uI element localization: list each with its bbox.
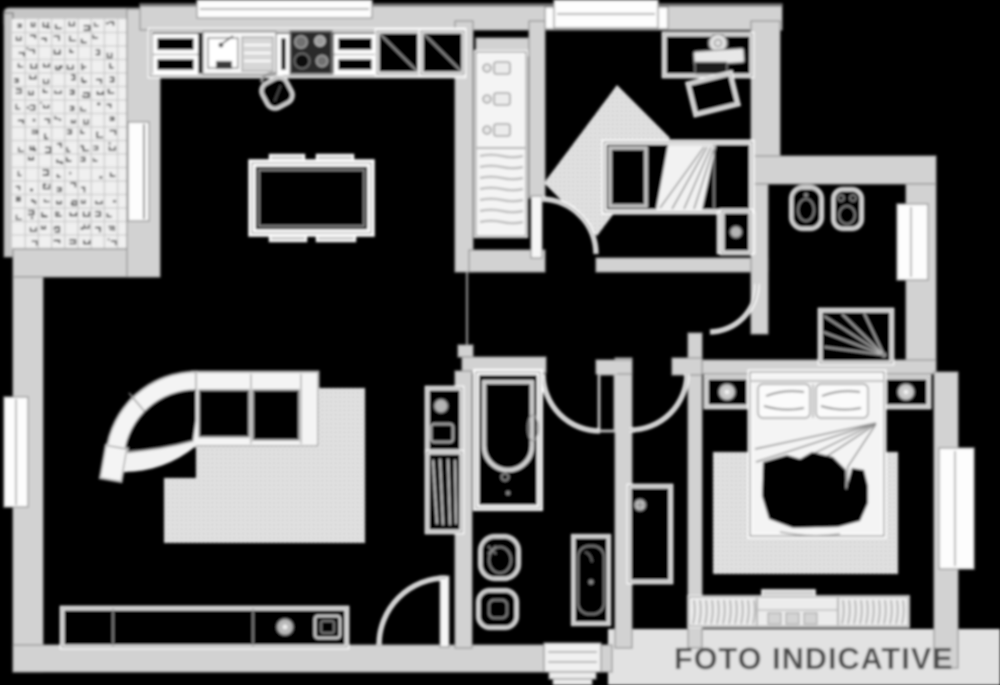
svg-text:FOTO INDICATIVE: FOTO INDICATIVE xyxy=(674,642,954,676)
